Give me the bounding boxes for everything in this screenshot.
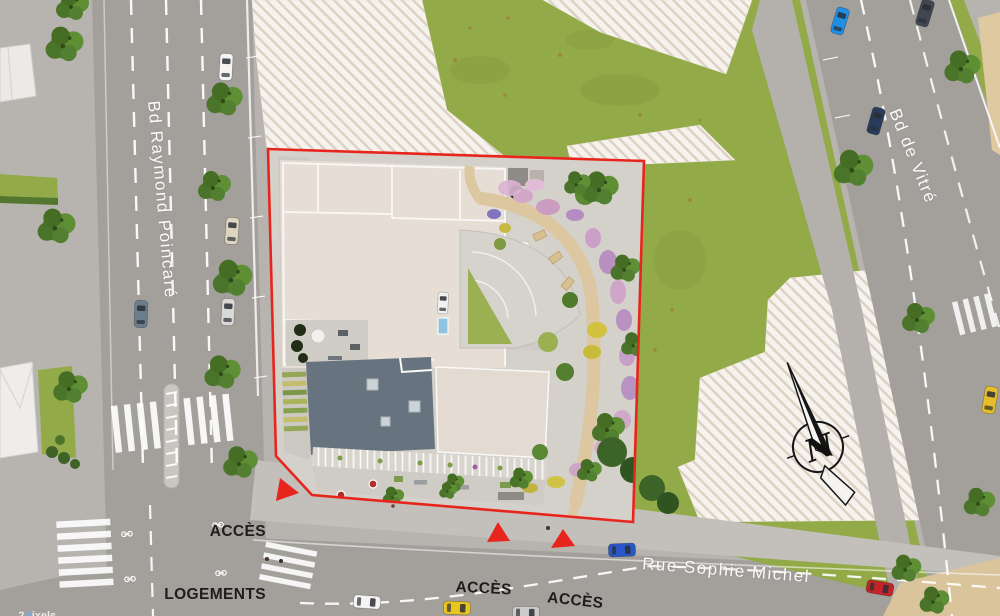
- access-logements-line2: LOGEMENTS: [158, 585, 266, 606]
- watermark-brand-p: P: [24, 610, 31, 616]
- courtyard-terrace: [286, 320, 368, 366]
- watermark-brand-rest: ixels: [32, 610, 56, 616]
- access-label-logements: ACCÈS LOGEMENTS: [158, 480, 266, 616]
- building-roof-second: [436, 367, 549, 458]
- aerial-site-plan: N Bd Raymond Poincaré Bd de Vitré Rue So…: [0, 0, 1000, 616]
- project-site-interior: [268, 149, 648, 524]
- car-inside-site: [437, 292, 449, 314]
- watermark: 2Pixels - Illustration non contractuelle: [6, 598, 149, 616]
- access-label-pietons: ACCÈS PIÉTONS: [510, 544, 635, 616]
- map-canvas: N: [0, 0, 1000, 616]
- median-island: [164, 384, 179, 488]
- building-roof-slate: [306, 357, 435, 455]
- access-logements-line1: ACCÈS: [158, 522, 266, 543]
- access-pietons-line1: ACCÈS: [520, 585, 630, 616]
